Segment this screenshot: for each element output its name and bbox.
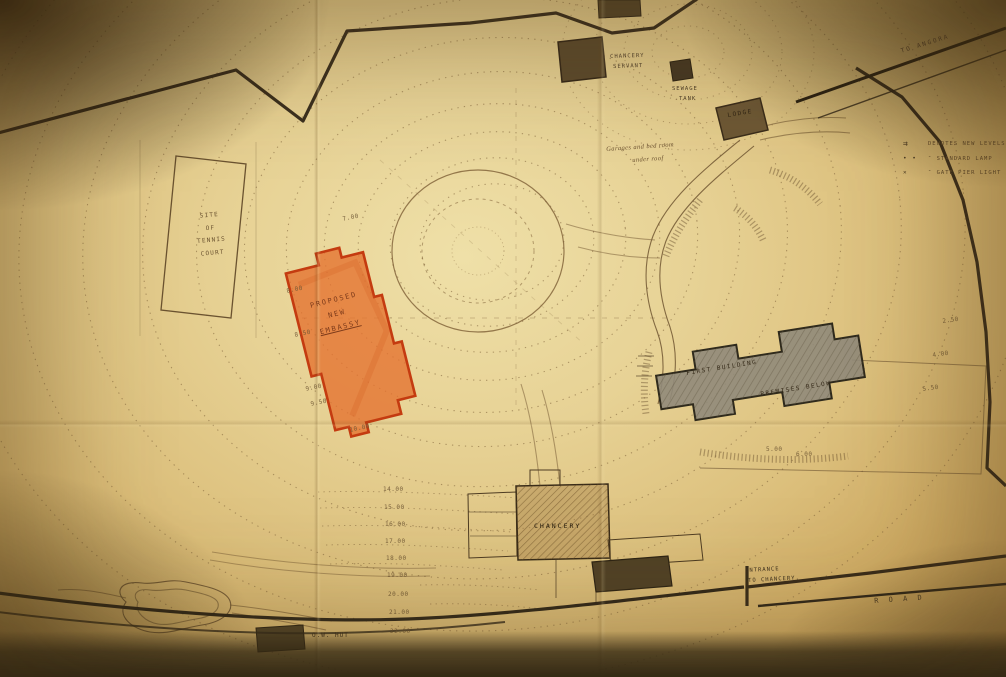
level-label: 22.00: [390, 628, 411, 635]
legend-symbol-standard-lamp: • •: [903, 155, 917, 162]
label-ow-hut: O.W. HUT: [312, 632, 349, 639]
level-label: 18.00: [386, 555, 407, 562]
pond-outline: [120, 581, 231, 633]
level-label: 21.00: [389, 609, 410, 616]
sewage-tank: [670, 59, 693, 81]
legend-symbol-gate-pier-light: ✕: [903, 169, 908, 176]
label-tennis-court: SITE OF TENNIS COURT: [184, 208, 238, 262]
boundary-line: [0, 0, 1006, 606]
level-label: 6.00: [796, 451, 812, 458]
chancery-building: [468, 470, 703, 602]
level-label: 5.00: [766, 446, 782, 453]
first-building-footprint: [652, 320, 867, 425]
legend-text-standard-lamp: ″ STANDARD LAMP: [928, 156, 993, 163]
level-label: 16.00: [385, 521, 406, 528]
proposed-embassy-footprint: [283, 239, 421, 443]
level-label: 15.00: [384, 504, 405, 511]
level-label: 14.00: [383, 486, 404, 493]
level-label: 20.00: [388, 591, 409, 598]
legend-text-new-levels: DENOTES NEW LEVELS: [928, 141, 1006, 148]
legend-symbol-new-levels: ⇉: [903, 139, 908, 149]
edge-building: [598, 0, 641, 18]
plan-linework: [0, 0, 1006, 677]
label-chancery: CHANCERY: [534, 523, 581, 531]
servants-quarters-building: [558, 37, 606, 82]
bottom-roads: [0, 584, 1006, 633]
legend-text-gate-pier-light: ″ GATE PIER LIGHT: [928, 170, 1001, 177]
level-label: 17.00: [385, 538, 406, 545]
label-servants-quarters-1: CHANCERY: [610, 53, 645, 61]
ow-hut-building: [256, 625, 305, 652]
angora-road: [796, 28, 1006, 118]
label-sewage-tank-2: TANK: [679, 96, 696, 103]
label-sewage-tank-1: SEWAGE: [672, 86, 698, 93]
contour-segments-slope: [318, 491, 542, 609]
map-photo: TO ANGORA CHANCERY SERVANT SEWAGE TANK L…: [0, 0, 1006, 677]
lodge-building: [716, 98, 768, 140]
label-servants-quarters-2: SERVANT: [613, 63, 643, 71]
level-label: 19.00: [387, 572, 408, 579]
